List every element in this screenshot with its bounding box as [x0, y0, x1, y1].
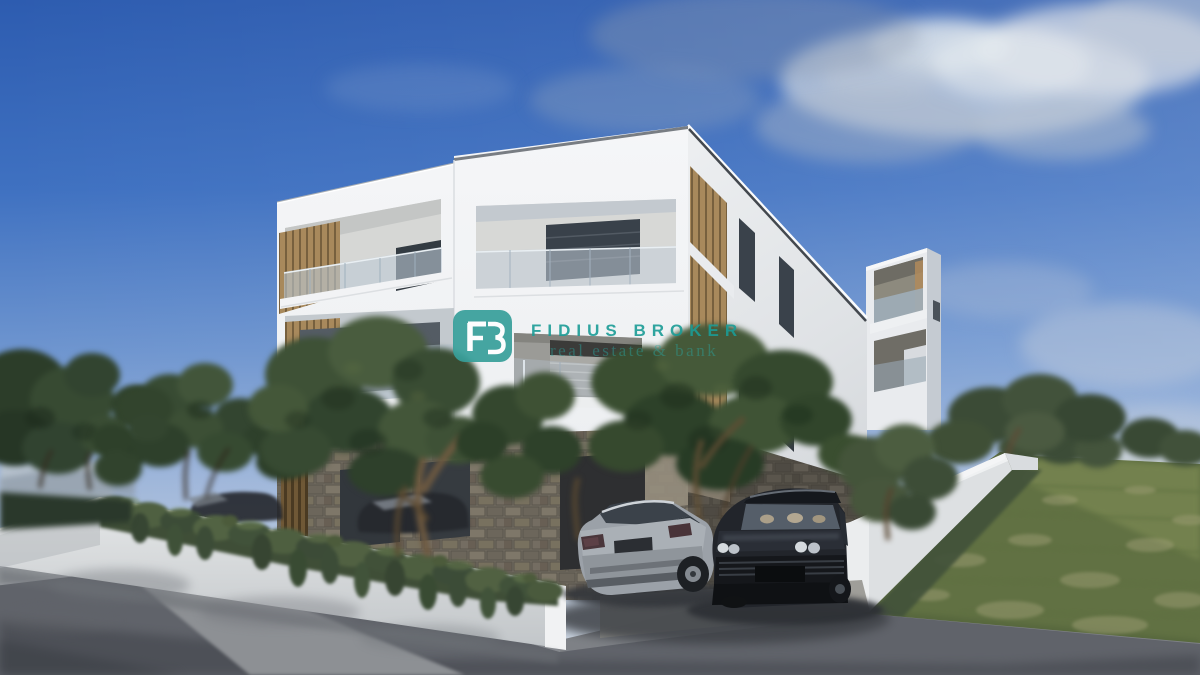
svg-text:real estate & bank: real estate & bank: [550, 341, 718, 360]
svg-text:FIDIUS BROKER: FIDIUS BROKER: [531, 321, 743, 340]
